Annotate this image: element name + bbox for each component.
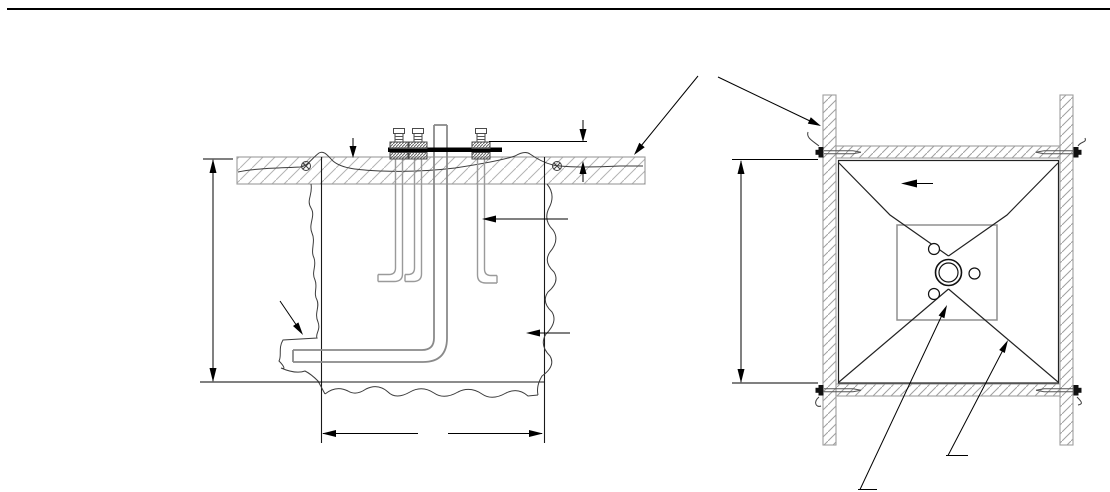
string-curl <box>816 397 821 406</box>
dim-arrow-down <box>210 368 217 382</box>
section-view <box>200 120 645 443</box>
plan-height-dimension <box>732 160 818 384</box>
string-leader-arrow <box>946 340 1008 456</box>
leveling-nut-top <box>472 142 490 149</box>
leveling-nut-bottom <box>390 153 408 160</box>
leveling-nut-top <box>409 142 427 149</box>
string-bottom-right <box>949 289 1059 382</box>
earth-break-bottom <box>325 387 538 398</box>
plan-view <box>732 95 1085 490</box>
string-curl <box>1077 397 1081 405</box>
string-curl <box>1078 138 1085 146</box>
conduit-inner-circle <box>939 263 958 282</box>
pier-width-dimension <box>322 430 543 437</box>
dim-arrow-up <box>210 159 217 173</box>
form-board-left <box>823 95 836 445</box>
anchor-bolt-top-2 <box>409 129 427 160</box>
dim-arrow-up <box>738 160 745 174</box>
dim-arrow-left <box>322 430 336 437</box>
template-leader-arrow <box>858 305 947 490</box>
drawing-page <box>0 0 1110 492</box>
forms-callout <box>634 76 821 155</box>
forms-leader-left-arm <box>641 76 698 146</box>
bolt-offset-arrow <box>482 216 568 223</box>
mini-dim-arrow-down <box>580 129 587 142</box>
pier-outline <box>322 157 545 443</box>
pier-pointer-arrow <box>526 330 570 337</box>
leveling-nut-bottom <box>472 153 490 160</box>
string-curl <box>808 132 819 146</box>
form-board-top <box>836 146 1060 158</box>
form-board-right <box>1060 95 1073 445</box>
leveling-nut-bottom <box>409 153 427 160</box>
leveling-nut-top <box>390 142 408 149</box>
form-board-bottom <box>836 384 1060 396</box>
forms-leader-left-arrowhead <box>634 143 645 155</box>
anchor-bolt-top-3 <box>472 129 490 160</box>
bolt-hole-bottom-left <box>929 289 940 300</box>
earth-break-right <box>538 184 557 395</box>
dim-arrow-down <box>738 369 745 383</box>
direction-arrow <box>901 180 933 188</box>
grade-down-arrow <box>350 138 357 158</box>
bolt-hole-top-left <box>929 244 940 255</box>
earth-break-lines <box>279 184 556 397</box>
engineering-drawing <box>0 0 1110 492</box>
overall-depth-dimension <box>200 159 322 382</box>
bolt-hole-right <box>969 268 980 279</box>
forms-leader-right-arrowhead <box>808 117 821 126</box>
conduit-leader-arrow <box>280 301 303 335</box>
forms-leader-right-arm <box>718 77 810 121</box>
dim-arrow-right <box>529 430 543 437</box>
anchor-bolt-top-1 <box>390 129 408 160</box>
